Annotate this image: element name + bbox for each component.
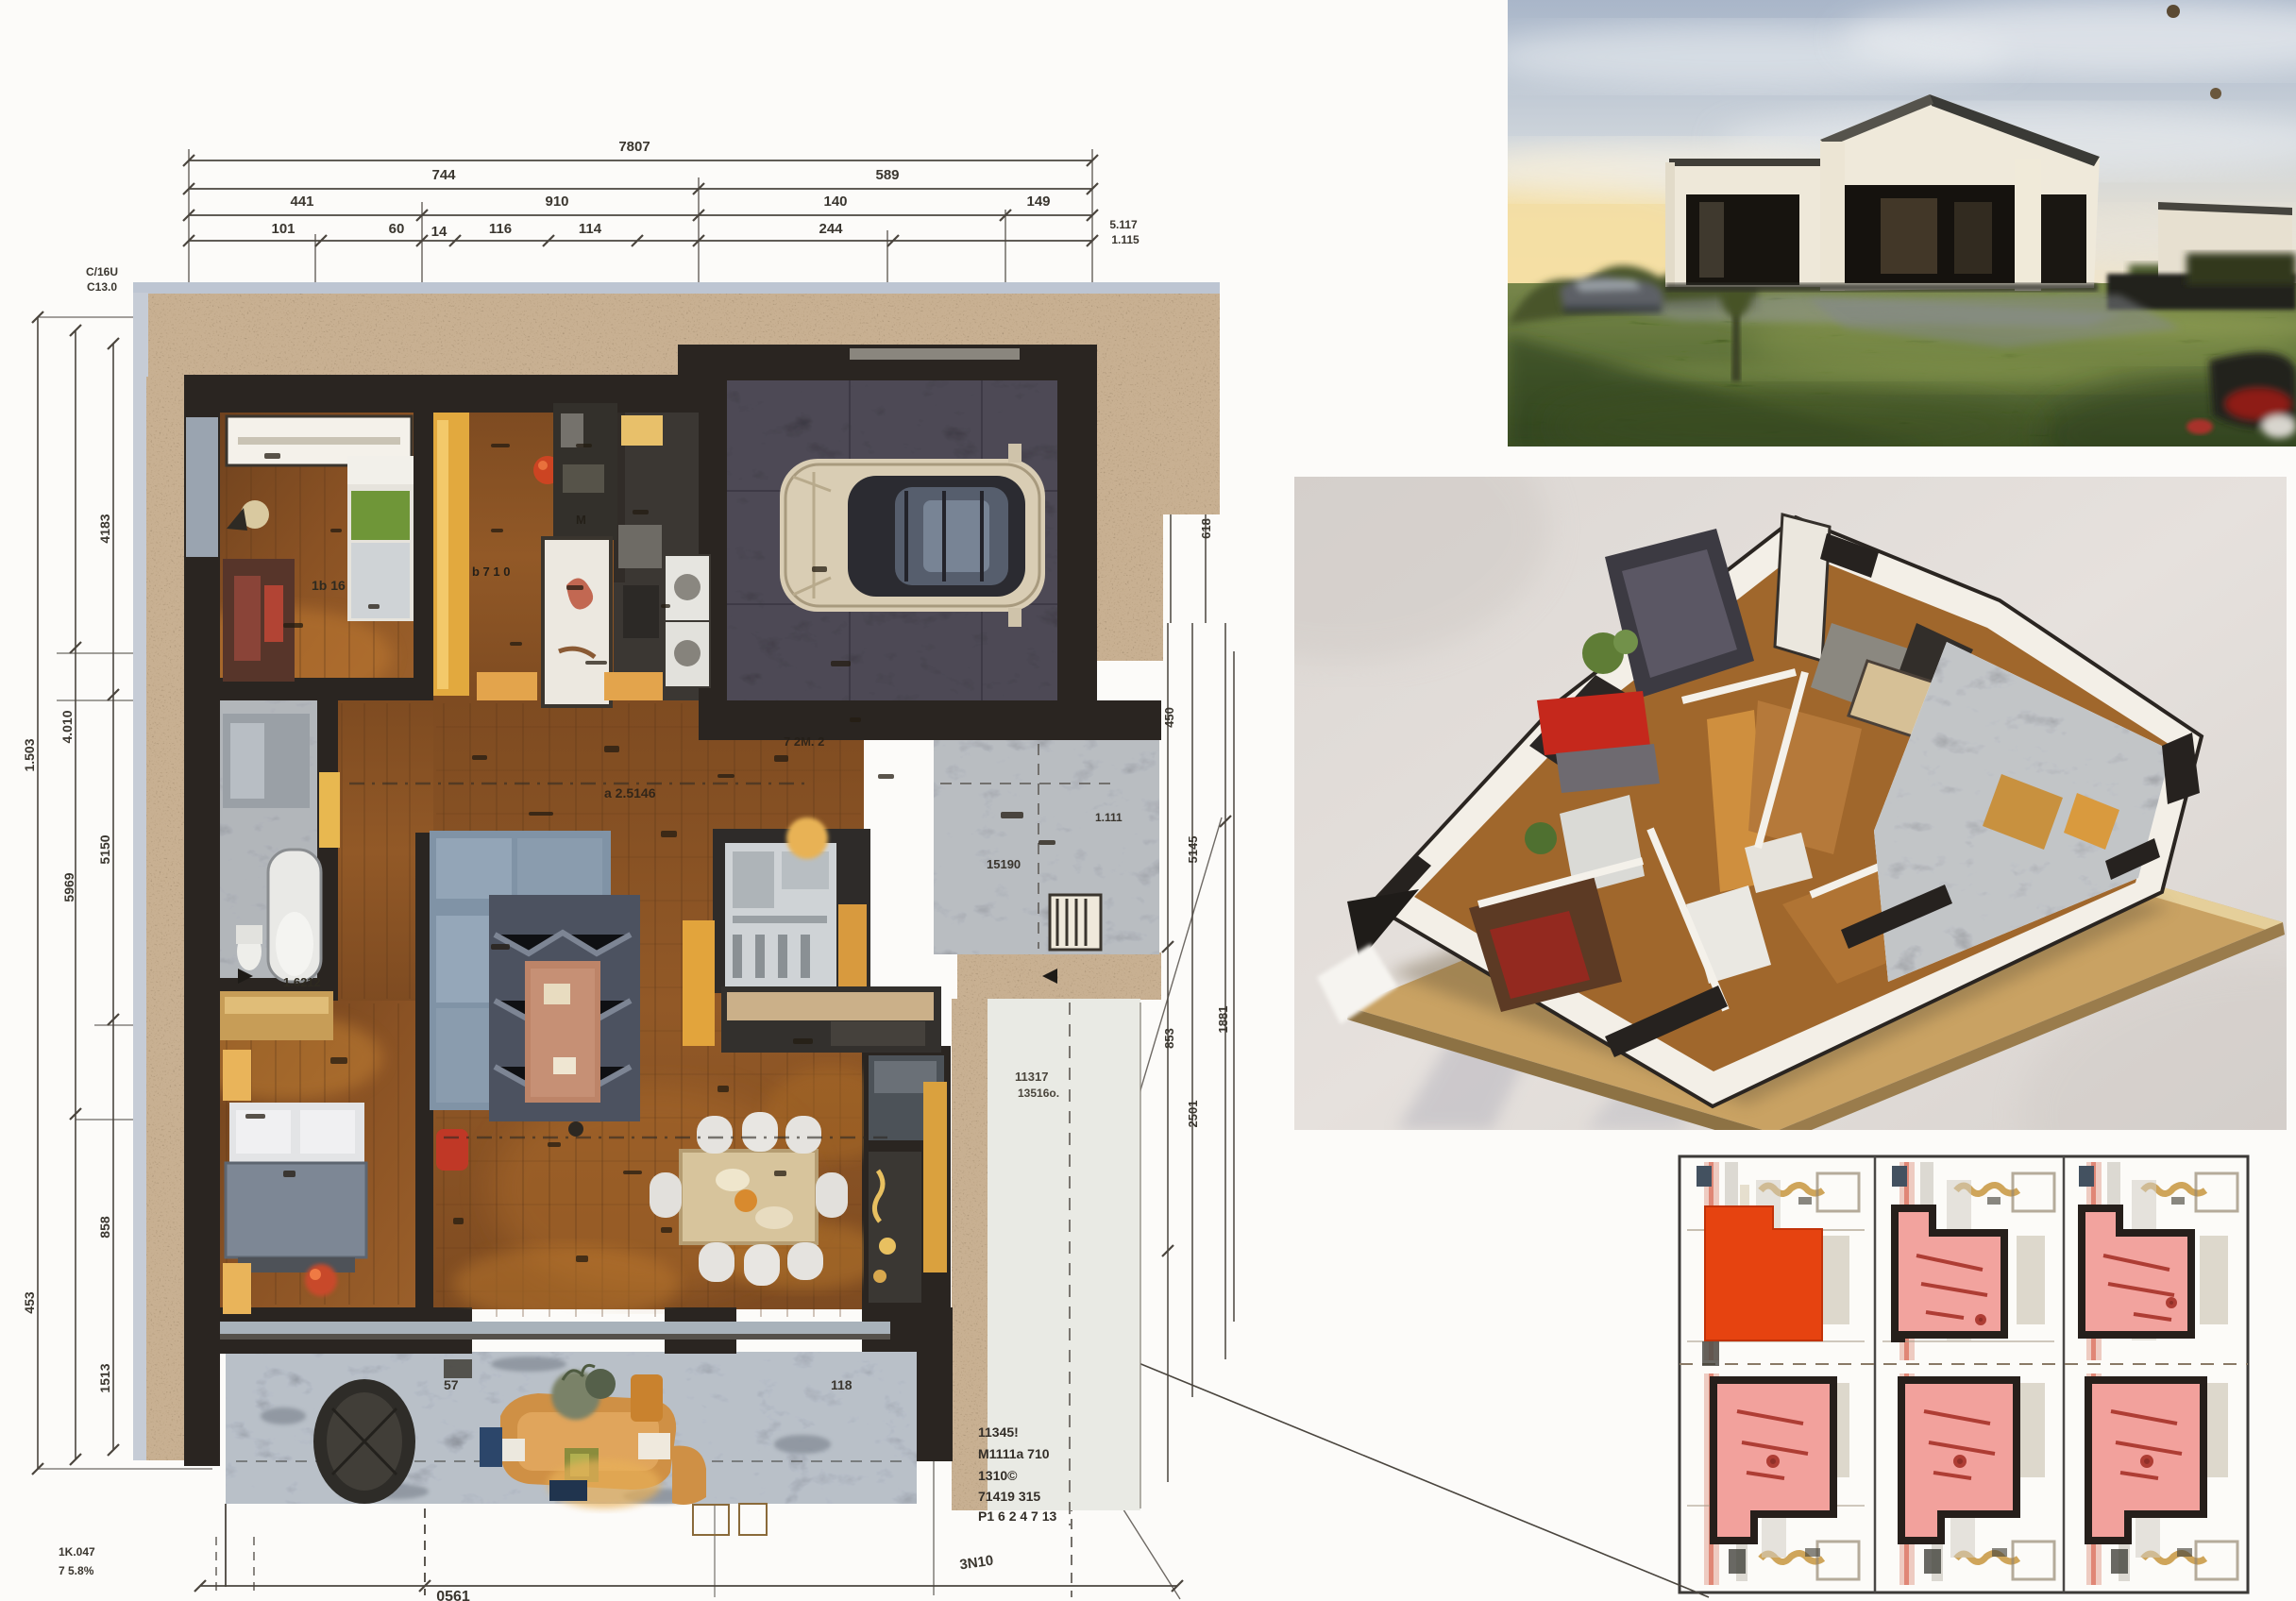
svg-text:744: 744: [431, 167, 456, 183]
svg-text:b 7 1 0: b 7 1 0: [472, 565, 510, 579]
svg-text:11345!: 11345!: [978, 1424, 1019, 1440]
svg-text:11317: 11317: [1015, 1070, 1048, 1084]
svg-text:441: 441: [290, 194, 313, 210]
svg-text:P1 6 2 4 7 13: P1 6 2 4 7 13: [978, 1508, 1057, 1524]
svg-text:618: 618: [1199, 518, 1213, 539]
svg-text:60: 60: [389, 221, 405, 237]
svg-text:244: 244: [819, 221, 843, 237]
svg-text:1.115: 1.115: [1111, 233, 1140, 246]
svg-text:13516o.: 13516o.: [1018, 1087, 1059, 1100]
svg-text:C13.0: C13.0: [87, 280, 117, 294]
svg-text:4.010: 4.010: [59, 710, 75, 743]
svg-text:0561: 0561: [436, 1589, 470, 1601]
svg-text:C/16U: C/16U: [86, 265, 118, 278]
svg-text:a 2.5146: a 2.5146: [604, 785, 656, 800]
svg-text:101: 101: [271, 221, 295, 237]
svg-text:1K.047: 1K.047: [59, 1545, 95, 1559]
svg-text:14: 14: [431, 224, 447, 240]
svg-text:5.117: 5.117: [1109, 218, 1138, 231]
svg-text:140: 140: [823, 194, 847, 210]
svg-text:M: M: [576, 513, 586, 527]
svg-text:858: 858: [97, 1216, 112, 1239]
svg-text:118: 118: [831, 1377, 853, 1392]
svg-text:1881: 1881: [1216, 1006, 1230, 1034]
svg-text:7807: 7807: [618, 139, 650, 155]
svg-text:7 5.8%: 7 5.8%: [59, 1564, 94, 1577]
svg-text:71419 315: 71419 315: [978, 1489, 1040, 1504]
svg-text:114: 114: [579, 221, 602, 237]
svg-text:1.111: 1.111: [1095, 811, 1123, 824]
svg-text:4183: 4183: [97, 514, 112, 543]
svg-text:589: 589: [875, 167, 899, 183]
svg-text:1513: 1513: [97, 1363, 112, 1392]
svg-text:2501: 2501: [1186, 1101, 1200, 1128]
svg-text:853: 853: [1162, 1028, 1176, 1049]
svg-text:149: 149: [1026, 194, 1050, 210]
svg-text:116: 116: [489, 221, 512, 237]
svg-text:15190: 15190: [987, 857, 1021, 871]
svg-text:1b 16: 1b 16: [312, 578, 346, 593]
svg-text:7 2M. 2: 7 2M. 2: [784, 734, 824, 749]
svg-text:1.503: 1.503: [22, 738, 37, 771]
svg-text:5150: 5150: [97, 834, 112, 864]
svg-text:1310©: 1310©: [978, 1468, 1018, 1483]
svg-text:450: 450: [1162, 707, 1176, 728]
svg-text:453: 453: [22, 1291, 37, 1314]
svg-text:M1111a 710: M1111a 710: [978, 1446, 1050, 1461]
svg-text:57: 57: [444, 1377, 459, 1392]
svg-text:910: 910: [545, 194, 568, 210]
svg-text:1.6212: 1.6212: [283, 975, 321, 989]
svg-text:5145: 5145: [1186, 836, 1200, 864]
svg-text:5969: 5969: [61, 872, 76, 902]
